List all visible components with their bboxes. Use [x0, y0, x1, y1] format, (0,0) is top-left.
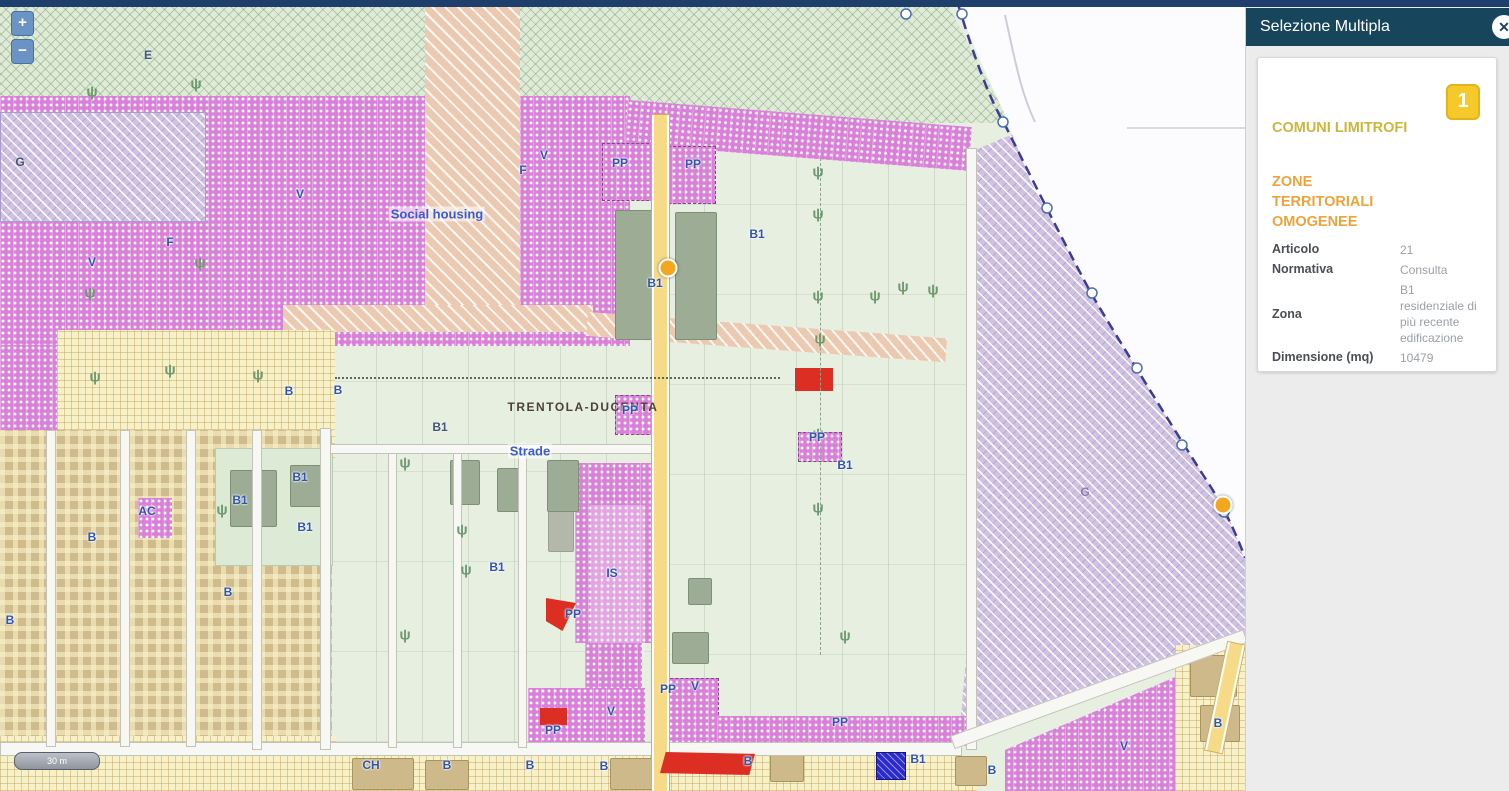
- map-zone-label: IS: [606, 566, 617, 580]
- map-zone-label: PP: [660, 682, 676, 696]
- map-zone-label: PP: [545, 723, 561, 737]
- field-articolo: Articolo 21: [1272, 242, 1482, 258]
- map-zone-label: B: [526, 758, 535, 772]
- map-zone-label: V: [540, 148, 548, 162]
- map-zoom-control[interactable]: + −: [11, 11, 34, 67]
- panel-title: Selezione Multipla: [1260, 18, 1390, 35]
- map-zone-label: B1: [749, 227, 764, 241]
- map-zone-label: B1: [647, 276, 662, 290]
- map-zone-label: PP: [622, 403, 638, 417]
- map-zone-label: V: [296, 187, 304, 201]
- map-zone-label: Strade: [508, 444, 552, 459]
- map-zone-label: B: [600, 759, 609, 773]
- selection-marker-icon[interactable]: [659, 259, 678, 278]
- map-zone-label: Social housing: [389, 207, 485, 222]
- map-zone-label: B1: [910, 752, 925, 766]
- map-zone-label: B: [334, 383, 343, 397]
- map-zone-label: B: [285, 384, 294, 398]
- normativa-link[interactable]: Consulta: [1400, 262, 1447, 278]
- map-zone-label: G: [15, 155, 24, 169]
- map-zone-label: V: [691, 679, 699, 693]
- map-zone-label: B1: [837, 458, 852, 472]
- map-zone-label: B1: [489, 560, 504, 574]
- zoom-in-button[interactable]: +: [11, 11, 34, 36]
- map-zone-label: V: [607, 704, 615, 718]
- map-zone-label: AC: [138, 504, 155, 518]
- map-zone-label: PP: [565, 607, 581, 621]
- map-zone-label: B: [1214, 716, 1223, 730]
- map-zone-label: PP: [809, 430, 825, 444]
- map-zone-label: B: [988, 763, 997, 777]
- map-zone-label: B1: [432, 420, 447, 434]
- map-zone-label: PP: [612, 156, 628, 170]
- map-zone-label: B1: [297, 520, 312, 534]
- municipality-boundary-layer: [0, 0, 1245, 791]
- selection-result-card: 1 COMUNI LIMITROFI ZONE TERRITORIALI OMO…: [1257, 57, 1497, 372]
- field-normativa: Normativa Consulta: [1272, 262, 1482, 278]
- map-zone-label: F: [519, 163, 526, 177]
- map-zone-label: V: [1120, 739, 1128, 753]
- map-zone-label: B: [744, 754, 753, 768]
- map-canvas[interactable]: + − 30 m EGGVFVFVSocial housingBBPPPPB1B…: [0, 0, 1245, 791]
- map-zone-label: B: [6, 613, 15, 627]
- map-zone-label: V: [88, 255, 96, 269]
- map-zone-label: B: [224, 585, 233, 599]
- result-count-badge: 1: [1446, 84, 1480, 120]
- section-zone-territoriali: ZONE TERRITORIALI OMOGENEE: [1272, 172, 1402, 232]
- section-comuni-limitrofi: COMUNI LIMITROFI: [1272, 120, 1482, 136]
- map-zone-label: F: [166, 235, 173, 249]
- map-zone-label: B: [88, 530, 97, 544]
- field-zona: Zona B1 residenziale di più recente edif…: [1272, 282, 1482, 346]
- selection-marker-icon[interactable]: [1214, 496, 1233, 515]
- map-zone-label: B: [443, 758, 452, 772]
- close-icon[interactable]: ✕: [1492, 15, 1509, 39]
- selection-panel: Selezione Multipla ✕ 1 COMUNI LIMITROFI …: [1245, 0, 1509, 791]
- map-scale-bar: 30 m: [14, 752, 100, 770]
- map-zone-label: G: [1080, 485, 1089, 499]
- map-zone-label: PP: [832, 715, 848, 729]
- map-zone-label: PP: [685, 157, 701, 171]
- zoom-out-button[interactable]: −: [11, 39, 34, 64]
- map-zone-label: B1: [232, 493, 247, 507]
- map-zone-label: E: [144, 48, 152, 62]
- field-dimensione: Dimensione (mq) 10479: [1272, 350, 1482, 366]
- top-navigation-bar: [0, 0, 1509, 7]
- zone-attributes: Articolo 21 Normativa Consulta Zona B1 r…: [1272, 242, 1482, 366]
- map-zone-label: CH: [362, 758, 379, 772]
- panel-header: Selezione Multipla ✕: [1246, 8, 1509, 46]
- map-zone-label: B1: [292, 470, 307, 484]
